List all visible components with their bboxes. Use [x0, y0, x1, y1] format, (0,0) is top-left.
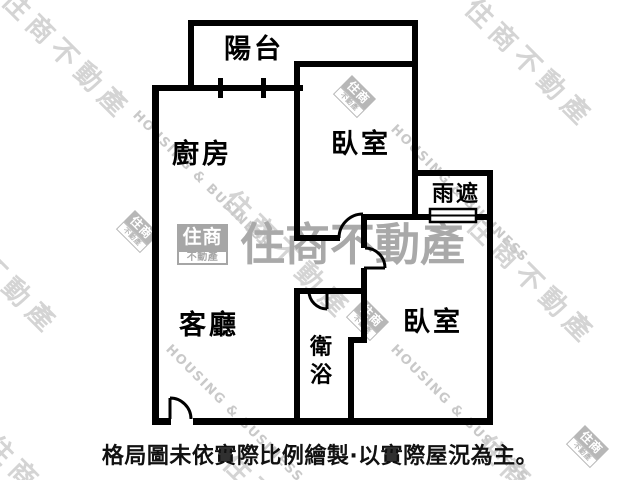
wall-kitchen-left: [152, 85, 159, 425]
wall-right-lower: [487, 170, 493, 425]
living-room-label: 客廳: [179, 309, 239, 341]
wall-bedroom1-bottom: [294, 235, 340, 241]
bathroom-label-char-2: 浴: [310, 363, 334, 388]
wall-rainshelter-top: [412, 170, 493, 176]
wall-hall-lower: [361, 268, 367, 343]
wall-step-vertical: [348, 337, 354, 425]
disclaimer-caption: 格局圖未依實際比例繪製·以實際屋況為主。: [0, 438, 640, 470]
wall-bedroom1-top: [294, 61, 418, 67]
floorplan-drawing: 陽台 廚房 臥室 雨遮 客廳 衛 浴 臥室: [0, 0, 640, 480]
wall-bottom-left: [152, 418, 171, 425]
bedroom1-door-swing: [339, 214, 363, 238]
wall-livingroom-right: [294, 288, 300, 425]
wall-kitchen-top: [152, 85, 303, 91]
bedroom-top-label: 臥室: [331, 128, 391, 160]
rain-shelter-label: 雨遮: [432, 181, 480, 207]
balcony-label: 陽台: [224, 33, 284, 65]
wall-bathroom-top: [294, 288, 367, 294]
rain-shelter-window: [430, 209, 476, 222]
entrance-door-swing: [170, 398, 191, 419]
bathroom-label-char-1: 衛: [309, 334, 334, 360]
wall-balcony-left: [188, 20, 194, 91]
wall-bottom-main: [193, 418, 493, 425]
wall-bedroom1-left: [294, 61, 300, 241]
wall-balcony-top: [188, 20, 418, 26]
wall-right-upper: [412, 20, 418, 220]
kitchen-label: 廚房: [172, 138, 232, 170]
bedroom-right-label: 臥室: [403, 306, 463, 338]
floorplan-image: 住商不動產 住商不動產 住商不動產 住商不動產 住商不動產 住商不動產 住商不動…: [0, 0, 640, 480]
bedroom2-door-swing: [364, 248, 385, 268]
window-tick-left: [218, 78, 223, 98]
window-tick-right: [261, 78, 266, 98]
